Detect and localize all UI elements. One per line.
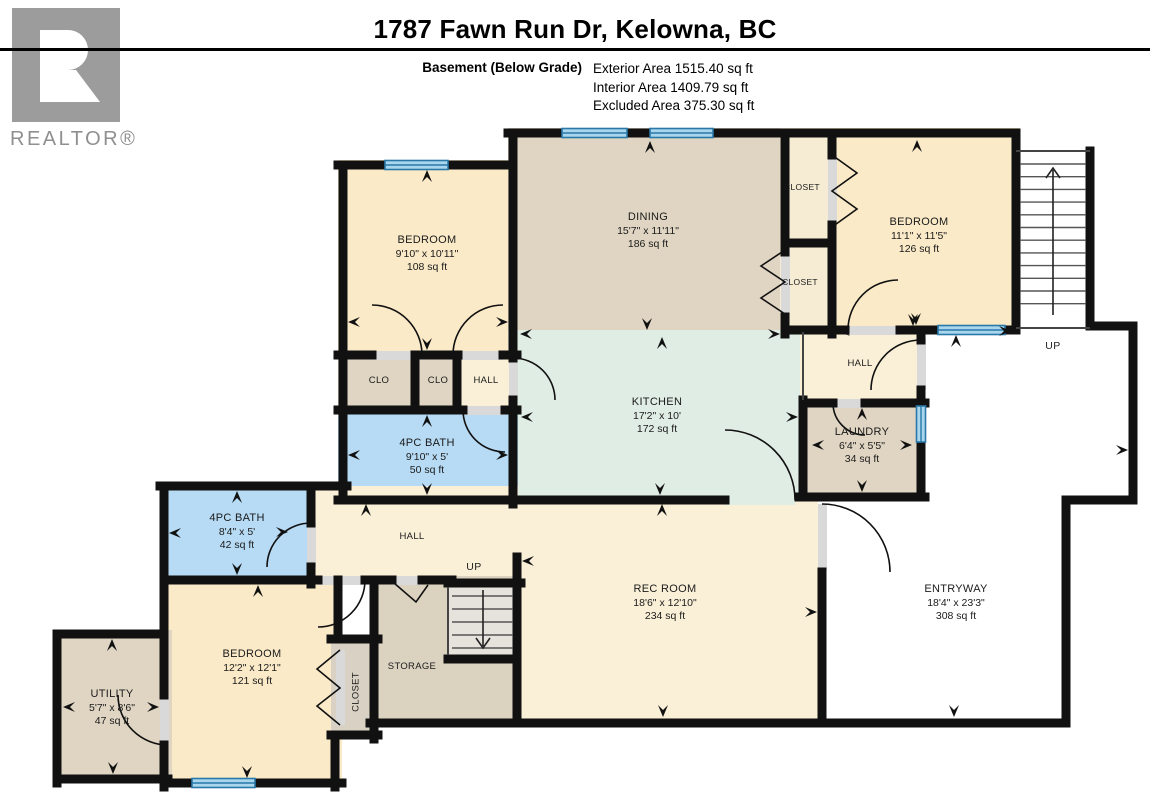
floor-label: Basement (Below Grade) <box>282 60 582 75</box>
exterior-area: Exterior Area 1515.40 sq ft <box>593 60 754 79</box>
room-fills <box>57 128 1138 787</box>
area-stats: Exterior Area 1515.40 sq ft Interior Are… <box>593 60 754 116</box>
page-title: 1787 Fawn Run Dr, Kelowna, BC <box>0 14 1150 45</box>
interior-area: Interior Area 1409.79 sq ft <box>593 79 754 98</box>
realtor-wordmark: REALTOR® <box>10 128 137 151</box>
floorplan-page: 1787 Fawn Run Dr, Kelowna, BC Basement (… <box>0 0 1150 792</box>
floor-plan-drawing <box>0 0 1150 792</box>
excluded-area: Excluded Area 375.30 sq ft <box>593 97 754 116</box>
header-divider <box>0 48 1150 51</box>
